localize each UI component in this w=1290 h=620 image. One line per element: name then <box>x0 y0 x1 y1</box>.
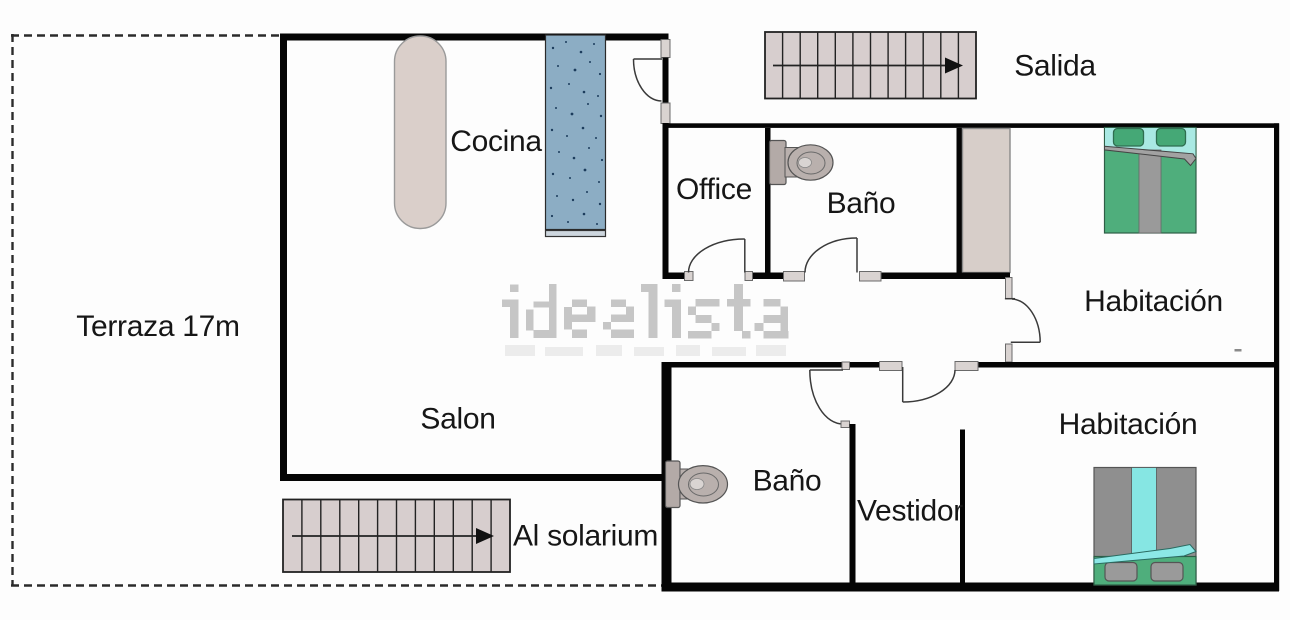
svg-text:Terraza 17m: Terraza 17m <box>76 310 239 343</box>
svg-text:Habitación: Habitación <box>1059 408 1198 441</box>
svg-text:Habitación: Habitación <box>1084 285 1223 318</box>
svg-text:Salon: Salon <box>420 403 495 436</box>
svg-text:Al solarium: Al solarium <box>513 520 658 553</box>
svg-text:Salida: Salida <box>1014 50 1096 83</box>
svg-text:Baño: Baño <box>827 187 896 220</box>
svg-text:Office: Office <box>676 173 752 206</box>
svg-text:Baño: Baño <box>753 465 822 498</box>
svg-text:Vestidor: Vestidor <box>857 495 963 528</box>
svg-text:Cocina: Cocina <box>450 125 542 158</box>
